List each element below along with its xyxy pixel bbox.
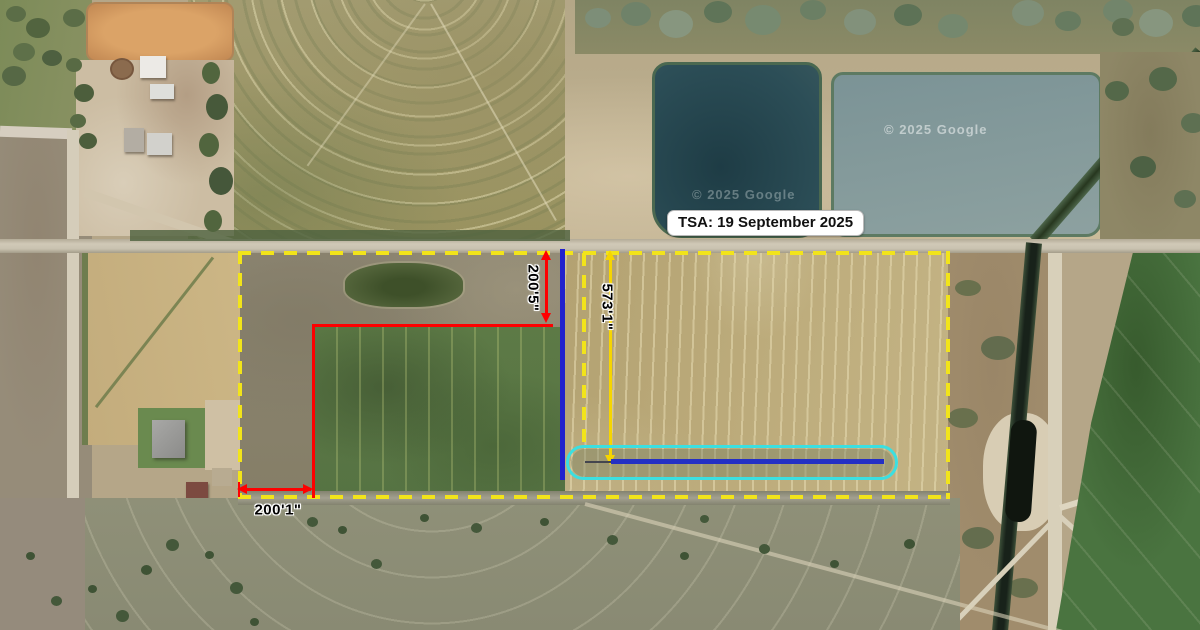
shrub-cluster: [345, 263, 463, 307]
dirt-road-east: [1048, 253, 1062, 630]
dirt-arena: [86, 2, 234, 62]
setback-line-north: [312, 324, 553, 327]
tree-row-band: [575, 0, 1200, 54]
arrowhead-up-icon: [541, 250, 551, 260]
shed: [212, 468, 232, 486]
arrowhead-up-icon: [605, 250, 615, 260]
pasture-south: [80, 498, 960, 630]
pasture-southwest: [0, 498, 85, 630]
round-pen: [110, 58, 134, 80]
green-field-southeast: [1040, 253, 1200, 630]
hedge-line: [82, 253, 88, 445]
farm-building: [150, 84, 174, 99]
parcel-boundary-west: [238, 251, 242, 499]
tree-cluster: [66, 58, 82, 72]
shrub-scatter: [26, 552, 35, 560]
dirt-road: [67, 130, 79, 510]
farm-building: [140, 56, 166, 78]
tree-cluster: [202, 62, 220, 84]
farm-building: [124, 128, 144, 152]
map-canvas[interactable]: © 2025 Google © 2025 Google 200'5" 573'1…: [0, 0, 1200, 630]
linear-feature-blue-bar: [611, 459, 884, 464]
interior-boundary-line: [582, 253, 586, 449]
tsa-date-callout: TSA: 19 September 2025: [667, 210, 864, 236]
google-watermark: © 2025 Google: [884, 122, 988, 137]
bar-connector-line: [585, 461, 613, 463]
tree-row: [585, 8, 611, 28]
pivot-irrigation-field: [188, 0, 570, 245]
tree-cluster: [6, 6, 26, 22]
measurement-label-north-offset: 200'5": [525, 264, 542, 311]
green-crop-field: [313, 327, 565, 497]
west-offset-arrow: [241, 488, 311, 491]
house-roof: [152, 420, 185, 458]
measurement-label-west-offset: 200'1": [254, 502, 301, 519]
north-offset-arrow: [545, 259, 548, 315]
survey-line-blue: [560, 249, 565, 480]
parcel-boundary-north: [238, 251, 950, 255]
parcel-boundary-south: [238, 495, 950, 499]
google-watermark: © 2025 Google: [692, 187, 796, 202]
gravel-driveway: [205, 400, 240, 470]
farm-building: [147, 133, 172, 155]
shrub-patches: [955, 280, 981, 296]
scrub-east-edge: [1100, 52, 1200, 252]
measurement-label-east-length: 573'1": [599, 283, 616, 330]
arrow-end-tick: [238, 482, 240, 497]
arrowhead-right-icon: [303, 484, 313, 494]
setback-line-west: [312, 325, 315, 498]
arrowhead-down-icon: [541, 313, 551, 323]
tree-cluster: [1112, 18, 1134, 36]
parcel-boundary-east: [946, 251, 950, 499]
road-shoulder-vegetation: [130, 230, 570, 241]
